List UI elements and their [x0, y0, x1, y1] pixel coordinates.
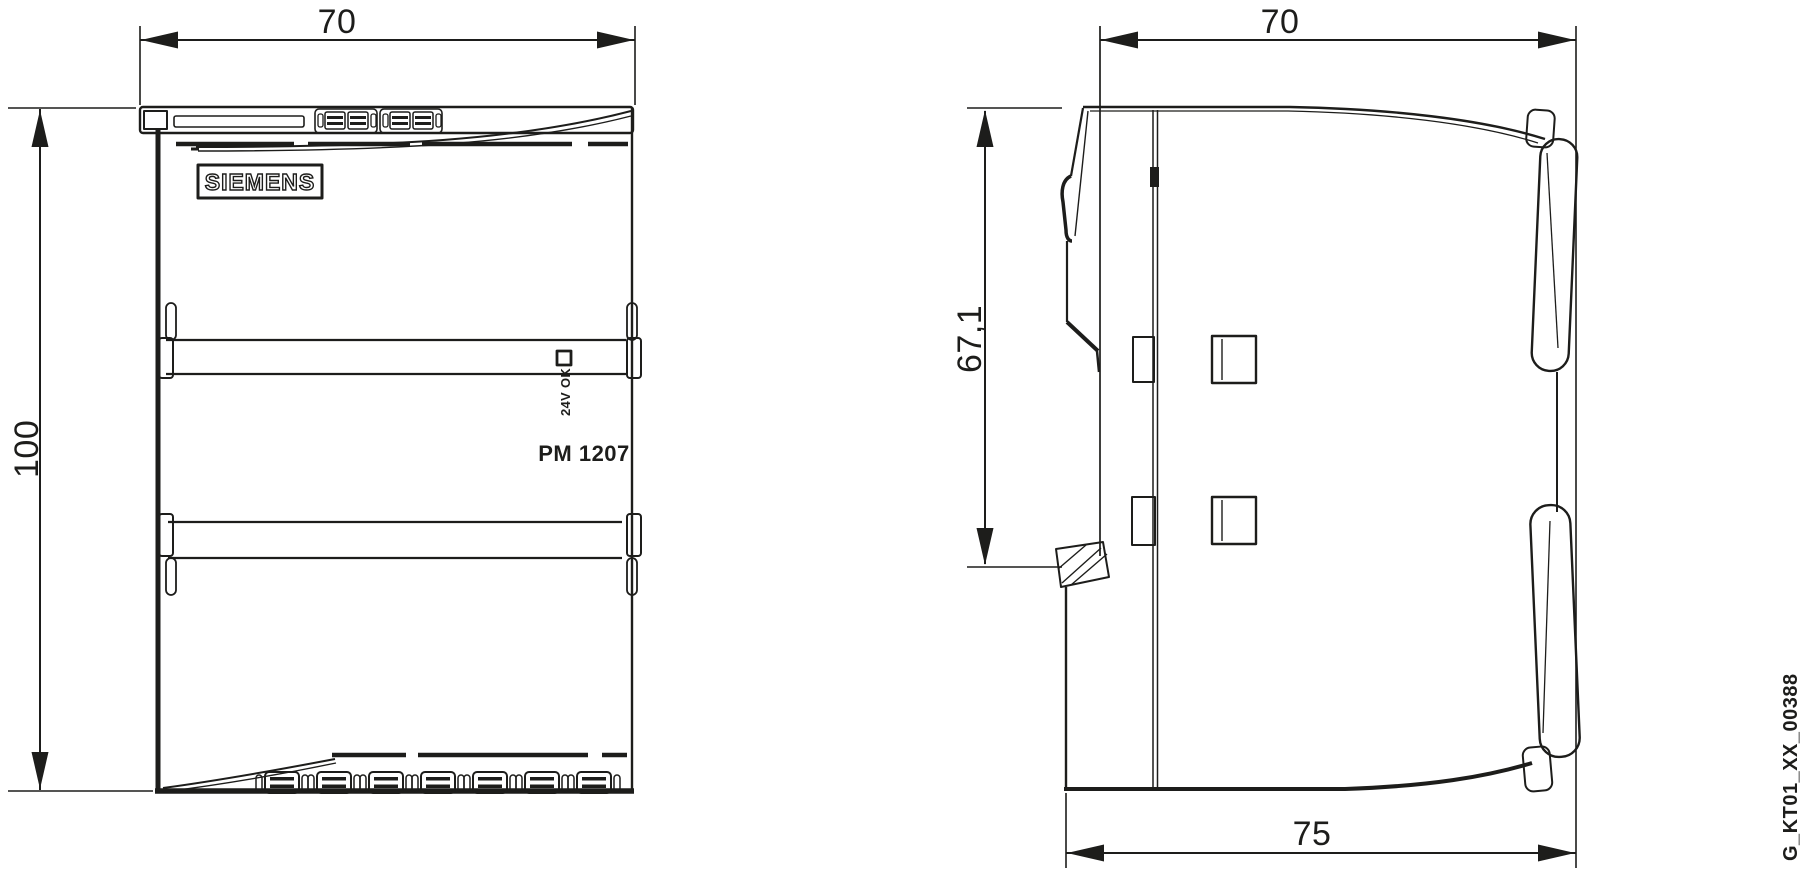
figure-id-label: G_KT01_XX_00388: [1780, 673, 1802, 861]
led-label: 24V OK: [558, 368, 573, 416]
side-depth-label: 75: [1293, 815, 1332, 853]
drawing-background: [0, 0, 1809, 874]
dimension-drawing: SIEMENS 24V OK PM 1207: [0, 0, 1809, 874]
side-width-label: 70: [1261, 3, 1300, 41]
front-height-label: 100: [8, 420, 46, 478]
side-upper-height-label: 67,1: [951, 305, 989, 373]
siemens-logo-text: SIEMENS: [205, 169, 316, 195]
product-label: PM 1207: [538, 441, 630, 466]
front-width-label: 70: [318, 3, 357, 41]
technical-drawing-canvas: SIEMENS 24V OK PM 1207: [0, 0, 1809, 874]
siemens-logo: SIEMENS: [198, 165, 322, 198]
